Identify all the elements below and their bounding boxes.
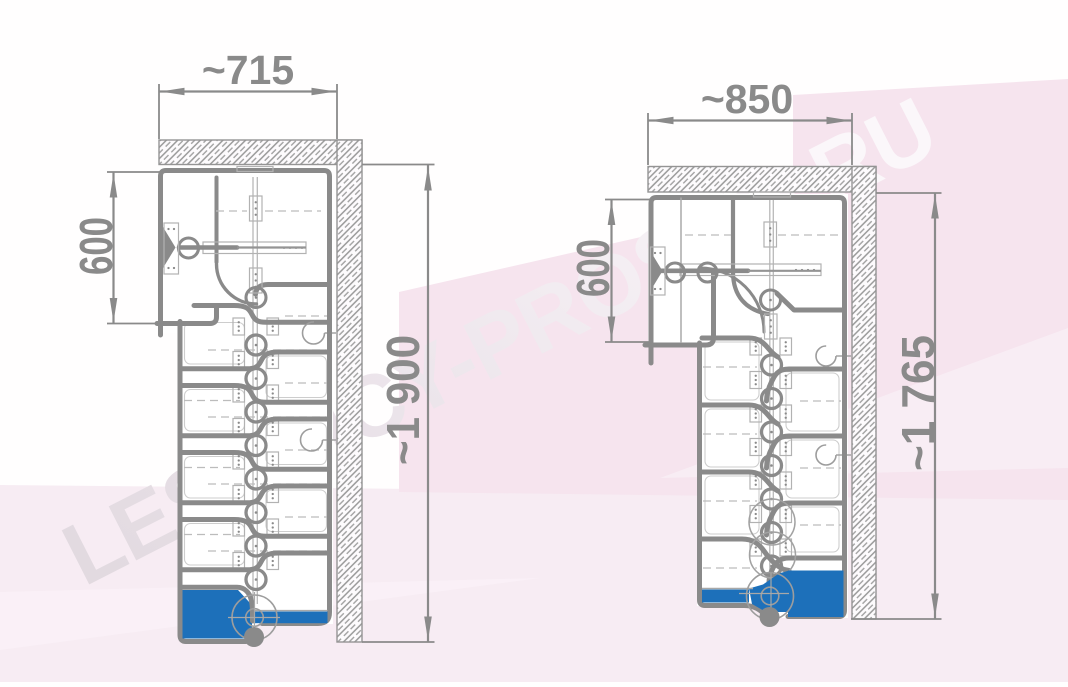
svg-text:~715: ~715 xyxy=(202,47,294,93)
svg-text:600: 600 xyxy=(70,217,122,275)
svg-text:~850: ~850 xyxy=(701,76,793,122)
svg-text:~1 900: ~1 900 xyxy=(377,335,429,465)
svg-text:600: 600 xyxy=(567,239,619,297)
svg-text:~1 765: ~1 765 xyxy=(892,335,944,471)
